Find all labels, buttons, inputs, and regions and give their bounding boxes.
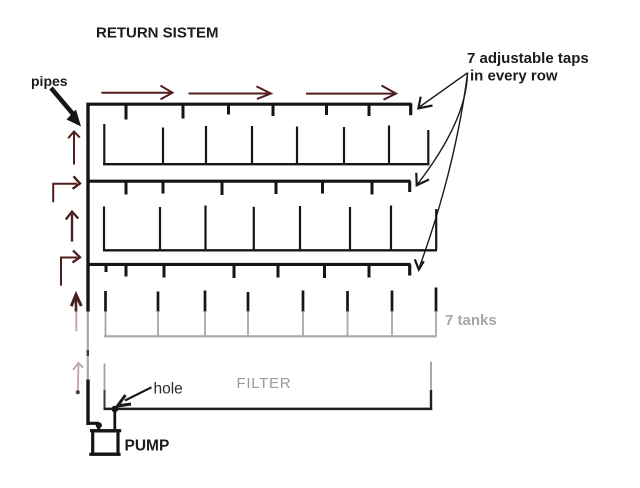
svg-text:PUMP: PUMP (125, 438, 170, 455)
svg-text:RETURN SISTEM: RETURN SISTEM (96, 25, 219, 42)
svg-text:FILTER: FILTER (237, 375, 292, 392)
svg-text:in every row: in every row (470, 68, 558, 85)
svg-text:hole: hole (154, 381, 183, 398)
svg-text:pipes: pipes (31, 73, 68, 89)
svg-text:7 adjustable taps: 7 adjustable taps (467, 50, 589, 67)
svg-text:7 tanks: 7 tanks (445, 312, 497, 329)
